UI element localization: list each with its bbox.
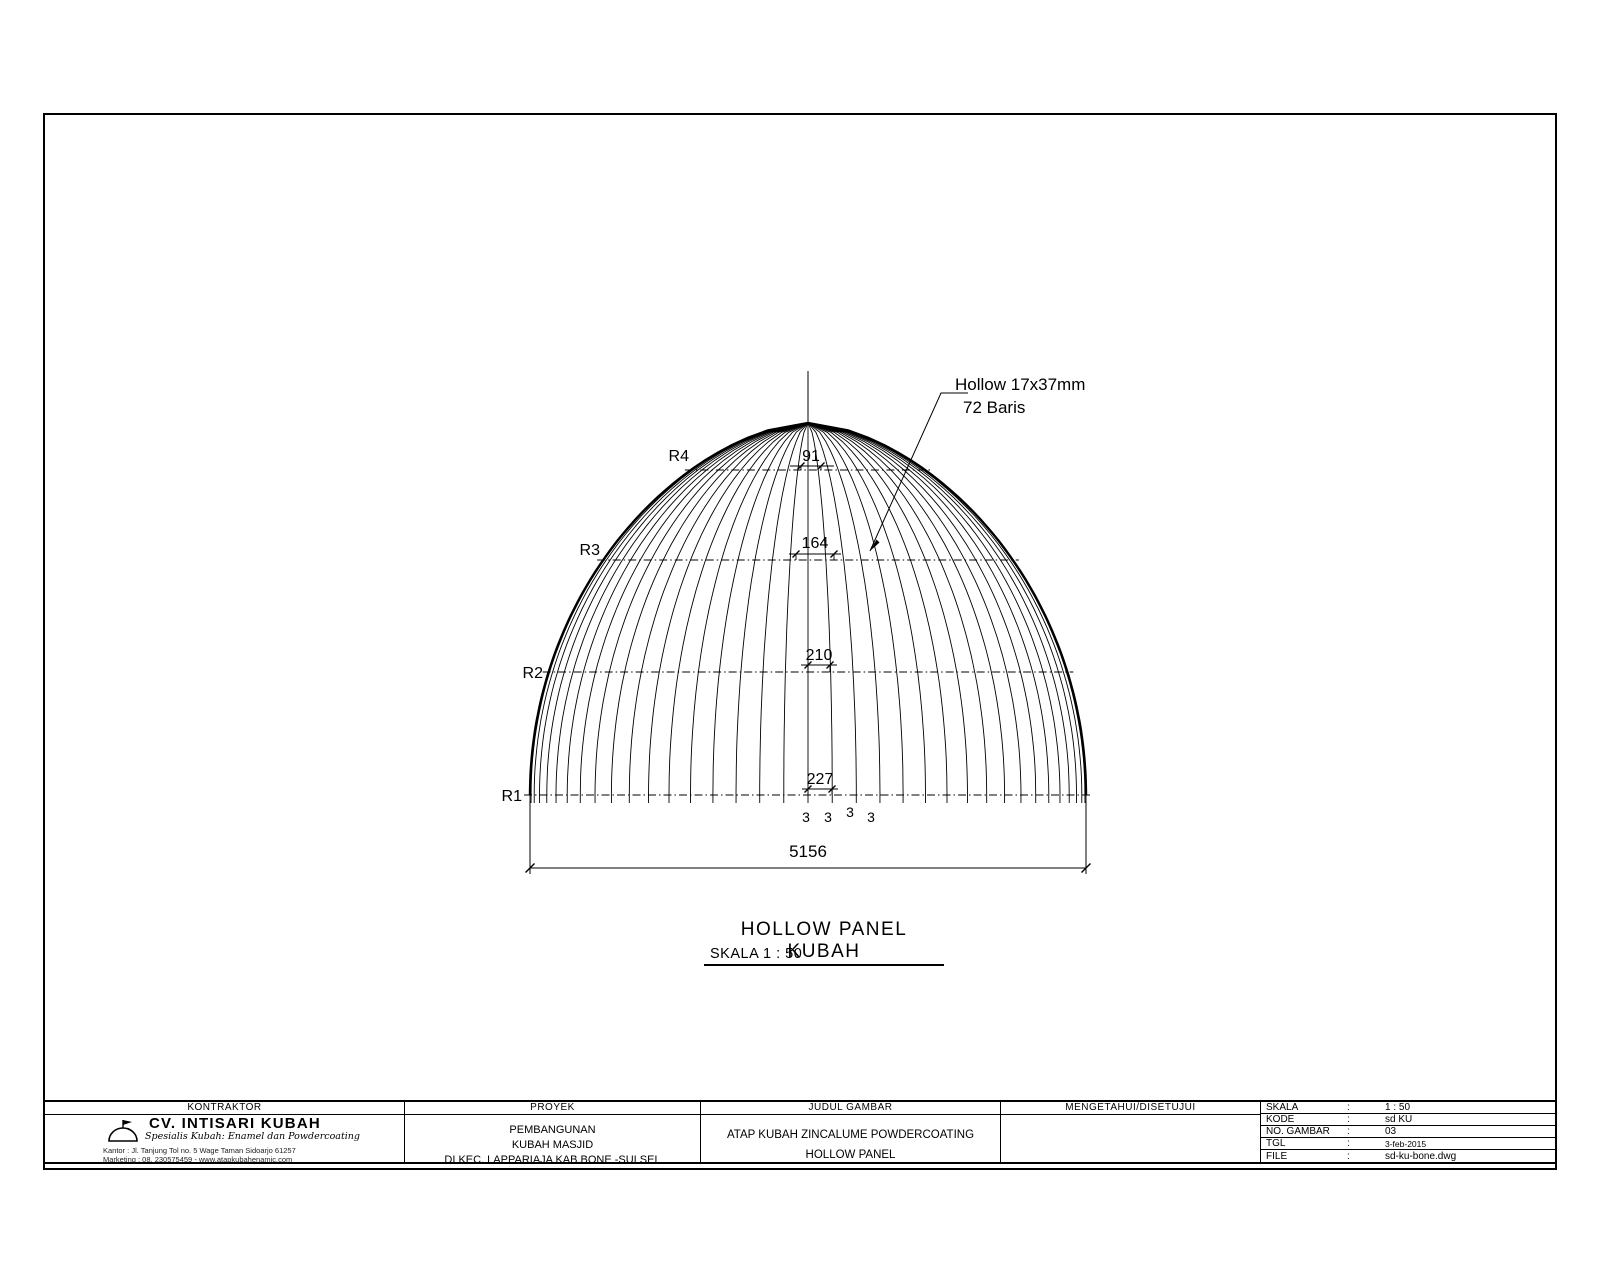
base-spacing-label: 3 bbox=[824, 809, 832, 825]
info-value: 1 : 50 bbox=[1385, 1102, 1410, 1113]
ring-label-R3: R3 bbox=[580, 542, 601, 559]
meridian-line bbox=[784, 423, 808, 795]
ring-label-R1: R1 bbox=[502, 788, 523, 805]
info-value: 03 bbox=[1385, 1126, 1396, 1137]
ring-dim-label-R2: 210 bbox=[806, 647, 833, 664]
info-value: sd KU bbox=[1385, 1114, 1412, 1125]
base-spacing-label: 3 bbox=[846, 804, 854, 820]
info-row-file: FILE:sd-ku-bone.dwg bbox=[1261, 1150, 1557, 1162]
drawing-title-line: ATAP KUBAH ZINCALUME POWDERCOATING bbox=[727, 1125, 974, 1145]
approval-header: MENGETAHUI/DISETUJUI bbox=[1001, 1102, 1260, 1115]
ring-dim-label-R4: 91 bbox=[802, 448, 820, 465]
contractor-cell: KONTRAKTOR CV. INTISARI KUBAH Spesialis … bbox=[45, 1102, 405, 1162]
meridian-line bbox=[808, 423, 987, 795]
project-line: PEMBANGUNAN bbox=[509, 1123, 595, 1138]
info-row-skala: SKALA:1 : 50 bbox=[1261, 1102, 1557, 1114]
approval-empty-area bbox=[1001, 1115, 1260, 1164]
meridian-line bbox=[808, 423, 1085, 795]
callout-text-line1: Hollow 17x37mm bbox=[955, 375, 1085, 394]
callout-text-line2: 72 Baris bbox=[963, 398, 1025, 417]
contractor-header: KONTRAKTOR bbox=[45, 1102, 404, 1115]
meridian-line bbox=[629, 423, 808, 795]
ring-label-R4: R4 bbox=[669, 448, 690, 465]
project-line: DI KEC. LAPPARIAJA KAB.BONE -SULSEL bbox=[444, 1153, 660, 1168]
drawing-scale-note: SKALA 1 : 50 bbox=[710, 946, 802, 962]
info-label: SKALA bbox=[1261, 1102, 1347, 1113]
drawing-title-cell: JUDUL GAMBAR ATAP KUBAH ZINCALUME POWDER… bbox=[701, 1102, 1001, 1162]
meridian-line bbox=[808, 423, 1060, 795]
dome-logo-icon bbox=[105, 1117, 145, 1145]
overall-dim-label: 5156 bbox=[789, 842, 827, 861]
info-label: FILE bbox=[1261, 1151, 1347, 1162]
project-cell: PROYEK PEMBANGUNAN KUBAH MASJID DI KEC. … bbox=[405, 1102, 701, 1162]
project-header: PROYEK bbox=[405, 1102, 700, 1115]
info-value: 3-feb-2015 bbox=[1385, 1139, 1426, 1149]
contractor-tagline: Spesialis Kubah: Enamel dan Powdercoatin… bbox=[145, 1131, 360, 1142]
meridian-line bbox=[556, 423, 808, 795]
meridian-line bbox=[808, 423, 1021, 795]
contractor-marketing: Marketing : 08. 230575459 - www.atapkuba… bbox=[103, 1155, 292, 1164]
meridian-line bbox=[808, 423, 926, 795]
ring-label-R2: R2 bbox=[523, 665, 544, 682]
contractor-address: Kantor : Jl. Tanjung Tol no. 5 Wage Tama… bbox=[103, 1146, 296, 1155]
dome-elevation-drawing: R1227R2210R3164R49133335156Hollow 17x37m… bbox=[0, 0, 1600, 1280]
meridian-line bbox=[808, 423, 832, 795]
info-label: KODE bbox=[1261, 1114, 1347, 1125]
meridian-line bbox=[691, 423, 809, 795]
info-row-kode: KODE:sd KU bbox=[1261, 1114, 1557, 1126]
ring-dim-label-R3: 164 bbox=[802, 535, 829, 552]
approval-cell: MENGETAHUI/DISETUJUI bbox=[1001, 1102, 1261, 1162]
base-spacing-label: 3 bbox=[867, 809, 875, 825]
drawing-title-header: JUDUL GAMBAR bbox=[701, 1102, 1000, 1115]
info-value: sd-ku-bone.dwg bbox=[1385, 1151, 1456, 1162]
project-line: KUBAH MASJID bbox=[512, 1138, 593, 1153]
title-block: KONTRAKTOR CV. INTISARI KUBAH Spesialis … bbox=[43, 1100, 1557, 1164]
base-spacing-label: 3 bbox=[802, 809, 810, 825]
info-label: TGL bbox=[1261, 1138, 1347, 1149]
drawing-title-line: HOLLOW PANEL bbox=[806, 1145, 896, 1165]
info-row-no-gambar: NO. GAMBAR:03 bbox=[1261, 1126, 1557, 1138]
meridian-line bbox=[595, 423, 808, 795]
drawing-sheet: { "colors": { "line": "#000000", "backgr… bbox=[0, 0, 1600, 1280]
contractor-company-name: CV. INTISARI KUBAH bbox=[149, 1115, 321, 1132]
info-label: NO. GAMBAR bbox=[1261, 1126, 1347, 1137]
meridian-line bbox=[531, 423, 808, 795]
info-table: SKALA:1 : 50 KODE:sd KU NO. GAMBAR:03 TG… bbox=[1261, 1102, 1557, 1162]
info-row-tgl: TGL:3-feb-2015 bbox=[1261, 1138, 1557, 1150]
